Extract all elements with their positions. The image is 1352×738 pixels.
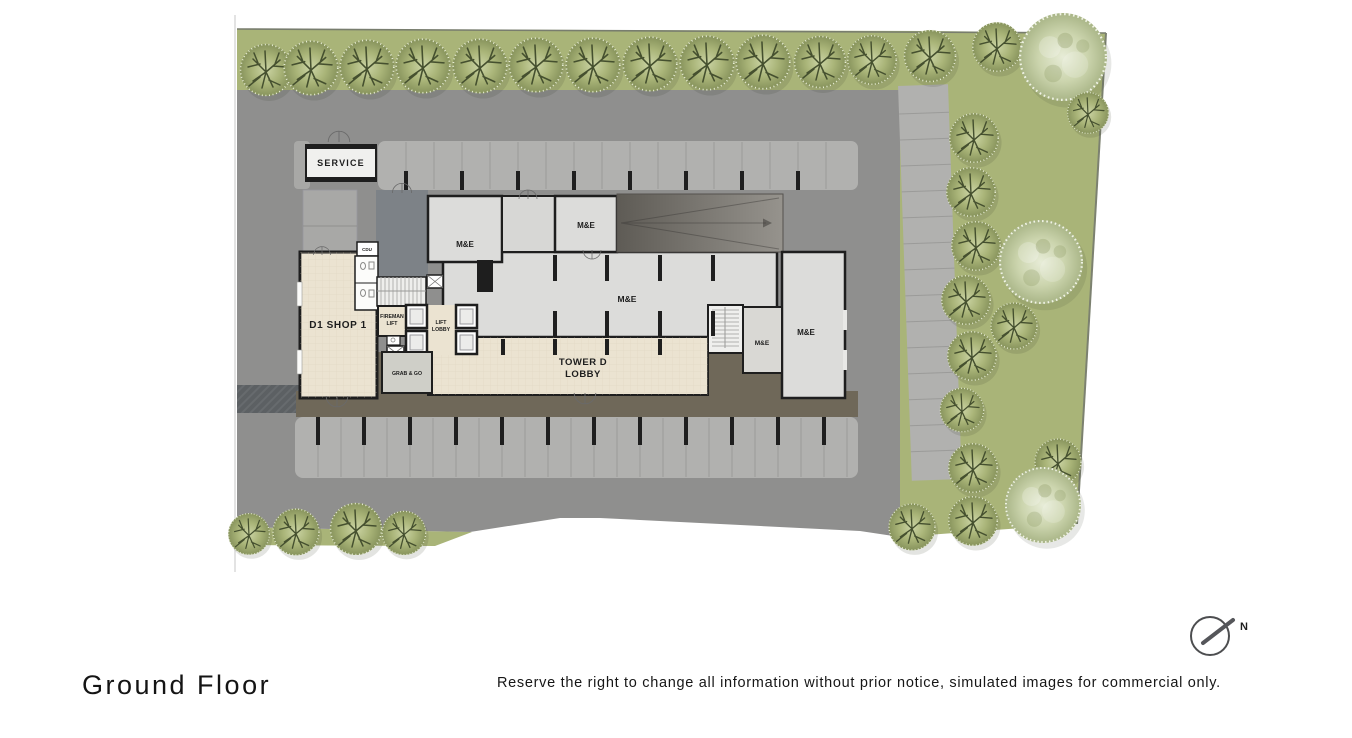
elevator-icon	[410, 335, 423, 350]
toilet-rooms	[355, 256, 378, 310]
grab-and-go-label: GRAB & GO	[392, 371, 422, 377]
page-title: Ground Floor	[82, 670, 271, 701]
floor-plan-page: SERVICE M&E M&E M&E M&E M&E D1 SHOP 1 CD…	[0, 0, 1352, 738]
north-compass: N	[1191, 617, 1248, 655]
elevator-icon	[460, 335, 473, 350]
service-label: SERVICE	[317, 158, 365, 168]
fireman-lift-label: LIFT	[387, 321, 399, 327]
store-room	[502, 196, 555, 252]
fireman-lift-label: FIREMAN	[380, 314, 404, 320]
north-label: N	[1240, 621, 1248, 633]
me-label: M&E	[755, 340, 770, 347]
elevator-icon	[410, 309, 423, 324]
me-label: M&E	[577, 221, 595, 230]
stair-core-left	[377, 277, 426, 306]
ramp	[617, 194, 783, 252]
me-label: M&E	[797, 328, 815, 337]
me-label: M&E	[456, 240, 474, 249]
lift-lobby-label: LOBBY	[432, 327, 451, 333]
shaft	[427, 275, 443, 288]
tower-d-lobby-label: TOWER D	[559, 357, 607, 368]
site-plan: SERVICE M&E M&E M&E M&E M&E D1 SHOP 1 CD…	[0, 0, 1352, 738]
me-label: M&E	[618, 294, 637, 304]
parking-row-top	[378, 141, 858, 190]
parking-row-bottom	[295, 417, 858, 478]
lift-lobby-label: LIFT	[436, 320, 448, 326]
ac-box	[387, 336, 400, 345]
vestibule-lower	[376, 254, 428, 277]
elevator-icon	[460, 309, 473, 324]
me-upper-room	[428, 196, 502, 262]
cdu-label: CDU	[362, 247, 372, 252]
wall-chunk	[477, 260, 493, 292]
disclaimer-text: Reserve the right to change all informat…	[497, 675, 1221, 691]
d1-shop-label: D1 SHOP 1	[309, 320, 366, 331]
vestibule	[376, 190, 428, 254]
tower-d-lobby-label: LOBBY	[565, 369, 601, 380]
crosswalk	[237, 385, 299, 413]
me-right-room	[782, 252, 845, 398]
